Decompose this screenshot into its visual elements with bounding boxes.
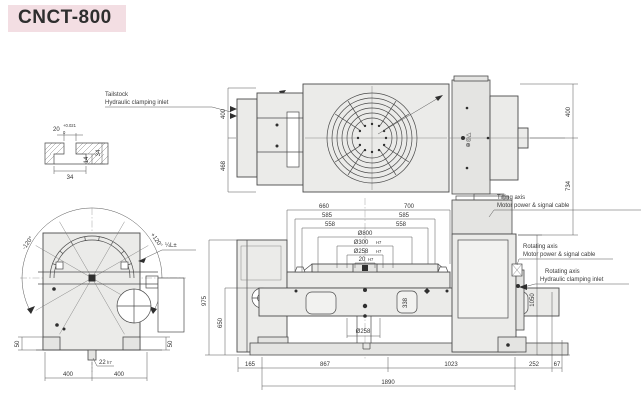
- leader-arrow: [230, 113, 237, 119]
- width-right-dim: 700: [404, 204, 415, 210]
- technical-drawing: 20 +0.021 0 34 14 34 Tailstock Hydraulic…: [0, 0, 643, 400]
- side-view: -120° +120°: [15, 208, 196, 381]
- tslot-width-dim: 20: [53, 127, 60, 133]
- bore-dia-dim: Ø300: [354, 240, 369, 246]
- tslot-outer-height-dim: 34: [96, 149, 102, 156]
- width-left-dim: 660: [319, 204, 330, 210]
- motor-cert-marks: ⊕◎△: [466, 132, 472, 147]
- tailstock-label-line2: Hydraulic clamping inlet: [105, 100, 169, 106]
- top-view: ⊕◎△ 400 468 400 734: [221, 76, 578, 235]
- rotating-axis-inlet-label-line2: Hydraulic clamping inlet: [540, 277, 604, 283]
- bore-fit: H7: [376, 240, 382, 245]
- handwheel-icon: [117, 289, 151, 323]
- table-dia-dim: Ø800: [358, 231, 373, 237]
- foot-left-dim: 50: [15, 340, 21, 347]
- front-view: 338: [202, 196, 570, 390]
- key-fit: H7: [368, 257, 374, 262]
- base-right-dim: 1023: [444, 362, 458, 368]
- leader-arrow: [230, 106, 237, 112]
- tslot-detail-view: 20 +0.021 0 34 14 34: [45, 123, 108, 181]
- rotating-axis-cable-label-line1: Rotating axis: [523, 244, 558, 250]
- slot-left-dim: 558: [325, 222, 336, 228]
- tslot-bottom-width-dim: 34: [67, 175, 74, 181]
- height-right-dim: 1050: [530, 293, 536, 307]
- spigot-dia-dim: Ø258: [354, 249, 369, 255]
- motor-width-dim: 400: [566, 106, 572, 117]
- height-base-dim: 650: [218, 317, 224, 328]
- foot-right-dim: 50: [168, 340, 174, 347]
- drawing-sheet: CNCT-800: [0, 0, 643, 400]
- height-table-dim: 975: [202, 295, 208, 306]
- side-note-label: ¼L±: [165, 243, 177, 249]
- tilting-axis-label-line2: Motor power & signal cable: [497, 203, 570, 209]
- half-left-dim: 585: [322, 213, 333, 219]
- bottom-dia-dim: Ø258: [356, 329, 371, 335]
- edge-dim: 67: [554, 362, 561, 368]
- span-right-dim: 400: [114, 372, 125, 378]
- side-key-dim: 22: [99, 360, 106, 366]
- tslot-tol-lower: 0: [63, 130, 66, 135]
- rotating-axis-inlet-label-line1: Rotating axis: [545, 269, 580, 275]
- rotating-axis-cable-label-line2: Motor power & signal cable: [523, 252, 596, 258]
- half-right-dim: 585: [399, 213, 410, 219]
- spigot-fit: H7: [376, 249, 382, 254]
- tailstock-height-dim: 400: [221, 108, 227, 119]
- key-width-dim: 20: [359, 257, 366, 263]
- base-left-dim: 165: [245, 362, 256, 368]
- side-key-fit: h7: [107, 360, 112, 365]
- tslot-inner-height-dim: 14: [84, 156, 90, 163]
- tilt-plus-dim: +120°: [149, 232, 163, 249]
- tailstock-label-line1: Tailstock: [105, 92, 129, 98]
- tslot-tol-upper: +0.021: [63, 123, 77, 128]
- span-left-dim: 400: [63, 372, 74, 378]
- overhang-dim: 252: [529, 362, 540, 368]
- base-mid-dim: 867: [320, 362, 331, 368]
- slot-right-dim: 558: [396, 222, 407, 228]
- total-length-dim: 1890: [381, 380, 395, 386]
- tailstock-height2-dim: 468: [221, 160, 227, 171]
- clamping-inlet-port: [516, 284, 520, 288]
- body-depth-dim: 734: [566, 180, 572, 191]
- pocket-height-dim: 338: [403, 297, 409, 308]
- tilting-axis-label-line1: Tilting axis: [497, 195, 525, 201]
